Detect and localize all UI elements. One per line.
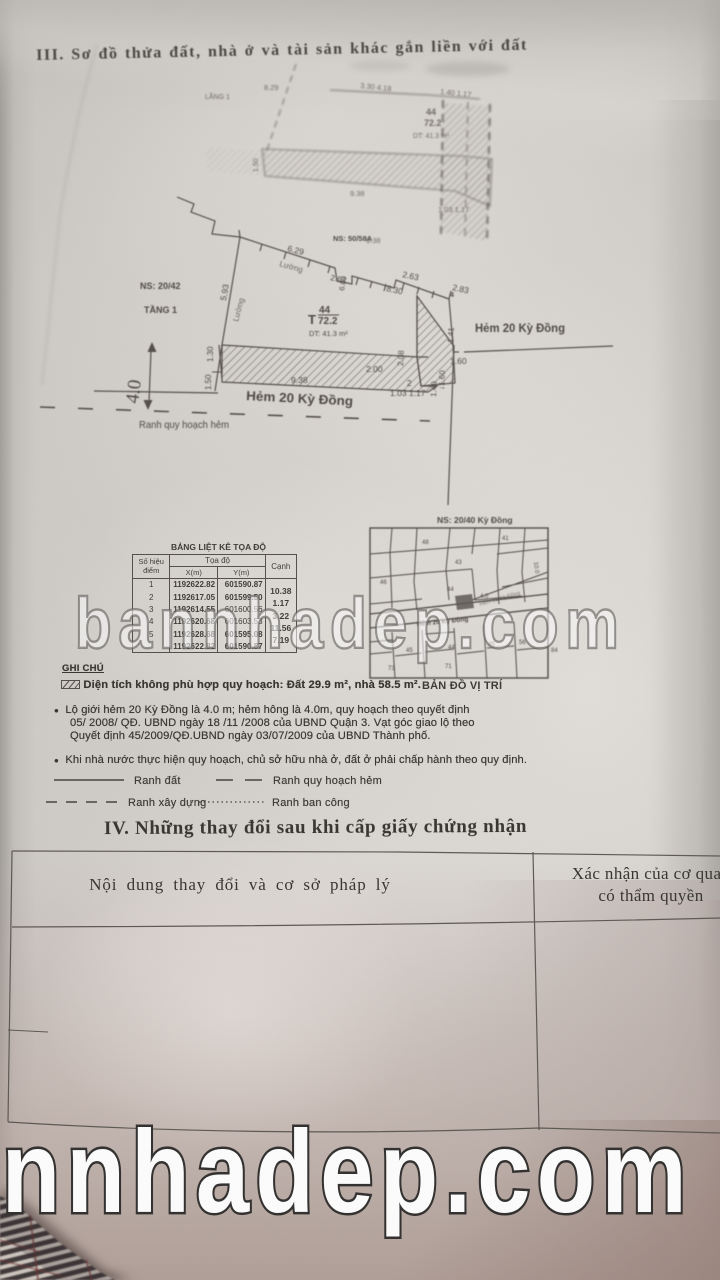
svg-text:NS: 20/42: NS: 20/42 xyxy=(140,281,181,291)
svg-text:72.2: 72.2 xyxy=(318,316,338,327)
svg-text:LẦNG 1: LẦNG 1 xyxy=(205,91,230,101)
svg-text:8.30: 8.30 xyxy=(386,283,405,296)
svg-text:1.60: 1.60 xyxy=(450,356,467,366)
svg-text:1.50: 1.50 xyxy=(253,158,260,172)
svg-text:1.30: 1.30 xyxy=(206,346,215,362)
svg-text:43: 43 xyxy=(455,560,462,566)
svg-text:Lường: Lường xyxy=(231,297,246,322)
svg-text:2.00: 2.00 xyxy=(366,364,383,374)
svg-text:Hẻm 20 Kỳ Đồng: Hẻm 20 Kỳ Đồng xyxy=(475,321,565,335)
svg-text:44: 44 xyxy=(319,305,331,316)
svg-text:44: 44 xyxy=(426,107,436,117)
svg-text:9.38: 9.38 xyxy=(291,375,308,385)
svg-text:10.0: 10.0 xyxy=(532,562,539,575)
svg-text:Ranh ban công: Ranh ban công xyxy=(272,797,350,809)
svg-text:9.38: 9.38 xyxy=(350,189,365,198)
svg-text:2.83: 2.83 xyxy=(452,282,471,295)
svg-text:1.50: 1.50 xyxy=(204,374,213,390)
svg-text:2.63: 2.63 xyxy=(330,273,348,285)
svg-text:bannhadep.com: bannhadep.com xyxy=(75,583,626,663)
svg-text:1.03 1.17: 1.03 1.17 xyxy=(438,205,469,214)
svg-text:Ranh quy hoạch hẻm: Ranh quy hoạch hẻm xyxy=(139,419,229,431)
svg-text:nnhadep.com: nnhadep.com xyxy=(2,1106,693,1237)
svg-text:5.93: 5.93 xyxy=(218,283,231,301)
svg-text:8.29: 8.29 xyxy=(264,83,279,92)
svg-text:Ranh xây dựng: Ranh xây dựng xyxy=(128,797,207,809)
svg-text:1.03 1.17: 1.03 1.17 xyxy=(390,388,426,398)
svg-text:NS: 50/58A: NS: 50/58A xyxy=(333,234,373,243)
svg-text:41: 41 xyxy=(502,536,509,542)
svg-text:Lường: Lường xyxy=(278,259,304,274)
svg-text:2.08: 2.08 xyxy=(396,350,406,367)
svg-text:DT: 41.3 m²: DT: 41.3 m² xyxy=(309,329,348,338)
svg-text:72.2: 72.2 xyxy=(424,118,442,128)
svg-text:6.29: 6.29 xyxy=(287,243,306,257)
svg-text:NS: 20/40 Kỳ Đồng: NS: 20/40 Kỳ Đồng xyxy=(437,515,513,525)
svg-text:Ranh đất: Ranh đất xyxy=(134,775,181,787)
svg-text:TẦNG 1: TẦNG 1 xyxy=(144,305,177,315)
svg-text:2.63: 2.63 xyxy=(402,269,421,282)
svg-text:4: 4 xyxy=(450,292,454,299)
svg-text:1.41: 1.41 xyxy=(446,327,456,344)
svg-text:2: 2 xyxy=(407,379,412,388)
svg-text:4.0: 4.0 xyxy=(122,378,146,404)
svg-text:Ranh quy hoạch hẻm: Ranh quy hoạch hẻm xyxy=(273,775,382,787)
svg-text:T: T xyxy=(308,312,316,327)
svg-text:↓1.60: ↓1.60 xyxy=(437,370,447,391)
svg-text:1.40 1.17: 1.40 1.17 xyxy=(440,87,472,99)
svg-text:DT: 41.3 m²: DT: 41.3 m² xyxy=(413,133,450,140)
svg-text:48: 48 xyxy=(422,540,429,546)
svg-text:Hẻm 20 Kỳ Đồng: Hẻm 20 Kỳ Đồng xyxy=(246,388,354,409)
